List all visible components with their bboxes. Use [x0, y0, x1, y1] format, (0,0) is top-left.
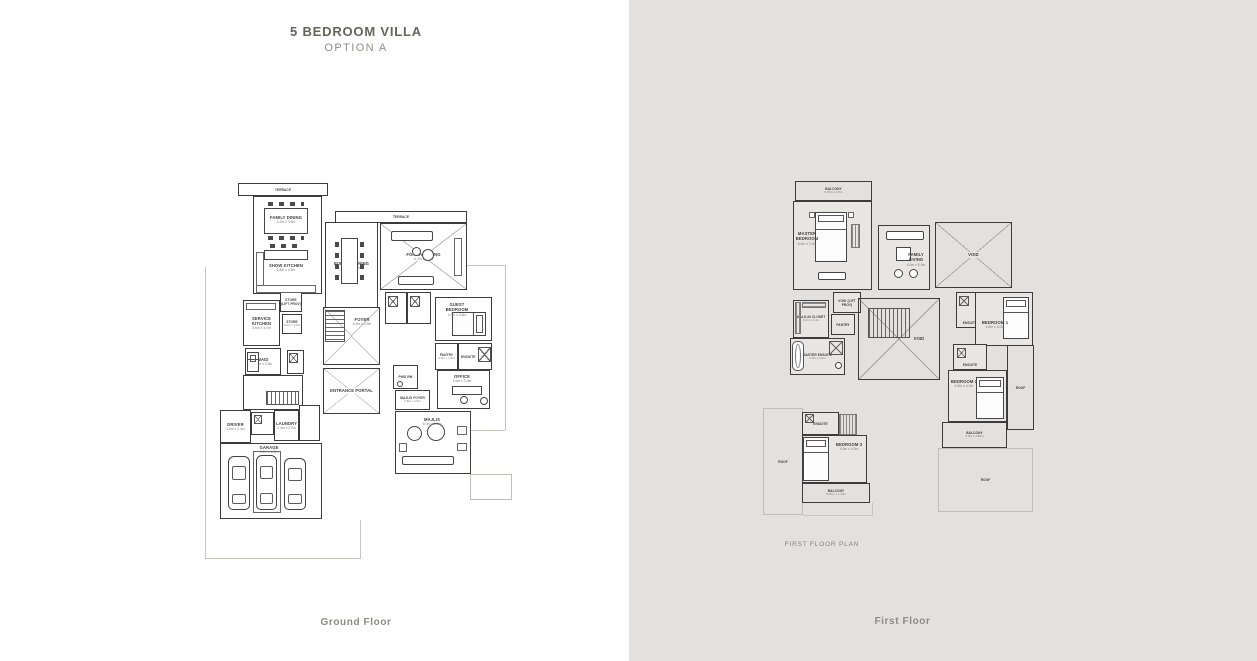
room-dim: 4.5m x 4.0m [833, 447, 865, 451]
toilet-icon [835, 362, 842, 369]
armchair-icon [894, 269, 903, 278]
sofa-icon [391, 231, 433, 241]
room-label-bedroom-2: BEDROOM 2 4.5m x 4.0m [948, 379, 980, 389]
room-label-office: OFFICE 3.6m x 3.0m [446, 374, 478, 384]
shower-icon [829, 341, 843, 355]
room-label: ENSUITE [813, 422, 828, 426]
room-store-lift: STORE (LIFT PROV) [280, 292, 302, 312]
bed-icon [803, 437, 829, 481]
staircase-icon [325, 310, 345, 342]
plot-boundary-line [205, 267, 206, 558]
page-title: 5 BEDROOM VILLA [200, 24, 512, 39]
counter-icon [256, 285, 316, 293]
room-label: PWD RM [399, 375, 413, 379]
room-dim: 5.4m x 4.5m [346, 322, 378, 326]
plot-boundary-line [803, 515, 873, 516]
wardrobe-icon [795, 302, 801, 334]
plot-boundary-line [470, 430, 505, 431]
room-entry-nook [299, 405, 320, 441]
brochure-page: 5 BEDROOM VILLA OPTION A TERRACE TERRACE… [0, 0, 1257, 661]
room-dim: 4.0m x 3.6m [438, 313, 476, 317]
room-label: ROOF [778, 460, 788, 464]
room-laundry: LAUNDRY 2.4m x 2.0m [274, 410, 299, 441]
room-dim: 4.5m x 4.0m [948, 384, 980, 388]
room-dim: 8.0m x 6.2m [246, 450, 292, 454]
room-dim: 3.0m x 2.4m [226, 427, 245, 431]
car-icon [228, 456, 250, 510]
chair-row-icon [268, 202, 304, 206]
media-unit-icon [454, 238, 462, 276]
chair-row-icon [335, 242, 339, 280]
room-dim: 4.5m x 3.0m [809, 357, 826, 361]
room-label: ENTRANCE PORTAL [329, 388, 374, 393]
kitchen-island-icon [264, 250, 308, 260]
room-label-void-center: VOID [906, 336, 932, 341]
plot-boundary-line [360, 520, 361, 559]
shower-icon [957, 348, 966, 358]
room-label: ENSUITE [963, 363, 978, 367]
side-table-icon [457, 426, 467, 435]
room-label-family-dining: FAMILY DINING 4.2m x 3.6m [262, 215, 310, 225]
room-label-bedroom-3: BEDROOM 3 4.5m x 4.0m [833, 442, 865, 452]
room-entrance-portal: ENTRANCE PORTAL [323, 368, 380, 414]
room-dim: 5.0m x 1.85m [965, 435, 983, 439]
staircase-icon [868, 308, 910, 338]
plot-boundary-line [467, 265, 505, 266]
room-label: FAMILY LIVING [903, 252, 929, 263]
bed-icon [976, 377, 1004, 419]
room-dim: 2.4m x 2.0m [277, 426, 296, 430]
room-dim: 5.00m x 1.70m [826, 493, 846, 497]
room-label-majlis: MAJLIS 6.0m x 5.0m [410, 417, 454, 427]
room-dim: 4.5m x 4.0m [977, 325, 1013, 329]
nightstand-icon [848, 212, 854, 218]
room-driver: DRIVER 3.0m x 2.4m [220, 410, 251, 443]
office-chair-icon [460, 396, 468, 404]
room-label: VOID [967, 252, 980, 257]
armchair-icon [407, 426, 422, 441]
room-label-family-living: FAMILY LIVING 4.0m x 5.0m [903, 252, 929, 267]
first-floor-caption: First Floor [765, 616, 1040, 627]
plot-boundary-line [872, 503, 873, 516]
dining-table-icon [341, 238, 358, 284]
shower-icon [388, 296, 398, 307]
room-label-bedroom-1: BEDROOM 1 4.5m x 4.0m [977, 320, 1013, 330]
shower-icon [478, 347, 491, 362]
chair-row-icon [360, 242, 364, 280]
room-dim: 4.0m x 5.0m [903, 263, 929, 267]
bed-icon [1003, 297, 1029, 339]
room-dim: 6.0m x 5.0m [410, 422, 454, 426]
shower-icon [289, 353, 298, 363]
shower-icon [959, 296, 969, 306]
room-label: VOID [906, 336, 932, 341]
sofa-icon [398, 276, 434, 285]
wardrobe-icon [802, 302, 826, 308]
shower-icon [805, 414, 814, 423]
plot-boundary-line [505, 265, 506, 430]
stool-row-icon [270, 244, 298, 248]
room-dim: 5.70m x 1.5m [824, 191, 842, 195]
first-floor-plan-label: FIRST FLOOR PLAN [757, 541, 887, 548]
room-pantry-ff: PANTRY [831, 314, 855, 335]
title-block: 5 BEDROOM VILLA OPTION A [200, 24, 512, 54]
side-table-icon [457, 443, 467, 451]
toilet-icon [397, 381, 403, 387]
room-dim: 2.0m x 1.8m [438, 357, 455, 361]
car-icon [256, 455, 277, 510]
room-majlis-foyer: MAJLIS FOYER 2.8m x 1.8m [395, 390, 430, 410]
car-icon [284, 458, 306, 510]
room-label-foyer: FOYER 5.4m x 4.5m [346, 317, 378, 327]
room-roof-right: ROOF [1007, 345, 1034, 430]
room-dim: 5.0m x 7.0m [793, 242, 821, 246]
room-label: ROOF [981, 478, 991, 482]
room-dim: 2.0m x 1.6m [284, 324, 301, 328]
room-label: ROOF [1016, 386, 1026, 390]
room-roof-bottom: ROOF [938, 448, 1033, 512]
room-void-lift: VOID (LIFT PROV) [833, 292, 861, 313]
room-balcony-2: BALCONY 5.0m x 1.85m [942, 422, 1007, 448]
shower-icon [254, 415, 262, 424]
counter-icon [246, 303, 276, 310]
room-label-guest-bedroom: GUEST BEDROOM 4.0m x 3.6m [438, 302, 476, 317]
page-subtitle: OPTION A [200, 42, 512, 54]
side-table-icon [399, 443, 407, 452]
nightstand-icon [809, 212, 815, 218]
room-label: STORE (LIFT PROV) [281, 298, 301, 306]
coffee-table-icon [412, 247, 421, 256]
armchair-icon [909, 269, 918, 278]
room-label: VOID (LIFT PROV) [834, 299, 860, 307]
room-dim: 3.6m x 3.0m [446, 379, 478, 383]
shower-icon [410, 296, 420, 307]
room-store: STORE 2.0m x 1.6m [282, 314, 302, 334]
sofa-icon [818, 272, 846, 280]
room-label: TERRACE [393, 215, 409, 219]
room-label: MASTER BEDROOM [793, 231, 821, 242]
first-floor-panel-background [629, 0, 1257, 661]
room-label: ENSUITE [461, 355, 476, 359]
coffee-table-icon [422, 249, 434, 261]
room-label: PANTRY [836, 323, 849, 327]
room-label-garage: GARAGE 8.0m x 6.2m [246, 445, 292, 455]
bed-icon [247, 352, 259, 372]
room-pantry: PANTRY 2.0m x 1.8m [435, 343, 458, 370]
sofa-icon [402, 456, 454, 465]
room-terrace-left: TERRACE [238, 183, 328, 196]
sofa-icon [886, 231, 924, 240]
ground-floor-caption: Ground Floor [200, 617, 512, 628]
room-label-show-kitchen: SHOW KITCHEN 5.8m x 4.5m [263, 263, 309, 273]
staircase-icon [266, 391, 299, 405]
desk-icon [452, 386, 482, 395]
plant-icon [480, 397, 488, 405]
room-label: SERVICE KITCHEN [244, 316, 279, 327]
room-dim: 2.8m x 1.8m [404, 400, 421, 404]
room-roof-left: ROOF [763, 408, 803, 515]
chair-row-icon [268, 236, 304, 240]
plot-boundary-line [205, 558, 361, 559]
room-dim: 5.8m x 4.5m [263, 268, 309, 272]
room-balcony-left: BALCONY 5.00m x 1.70m [802, 483, 870, 503]
room-void-top-right: VOID [935, 222, 1012, 288]
room-balcony-top: BALCONY 5.70m x 1.5m [795, 181, 872, 201]
room-label: TERRACE [275, 188, 291, 192]
bathtub-icon [792, 341, 804, 371]
patio-steps-outline [470, 474, 512, 500]
room-dim: 3.6m x 3.0m [252, 326, 271, 330]
room-dim: 4.2m x 3.6m [262, 220, 310, 224]
room-dim: 3.0m x 2.4m [803, 319, 820, 323]
room-label: GUEST BEDROOM [438, 302, 476, 313]
wardrobe-icon [839, 414, 857, 435]
room-label-master-bedroom: MASTER BEDROOM 5.0m x 7.0m [793, 231, 821, 246]
wardrobe-icon [851, 224, 860, 248]
